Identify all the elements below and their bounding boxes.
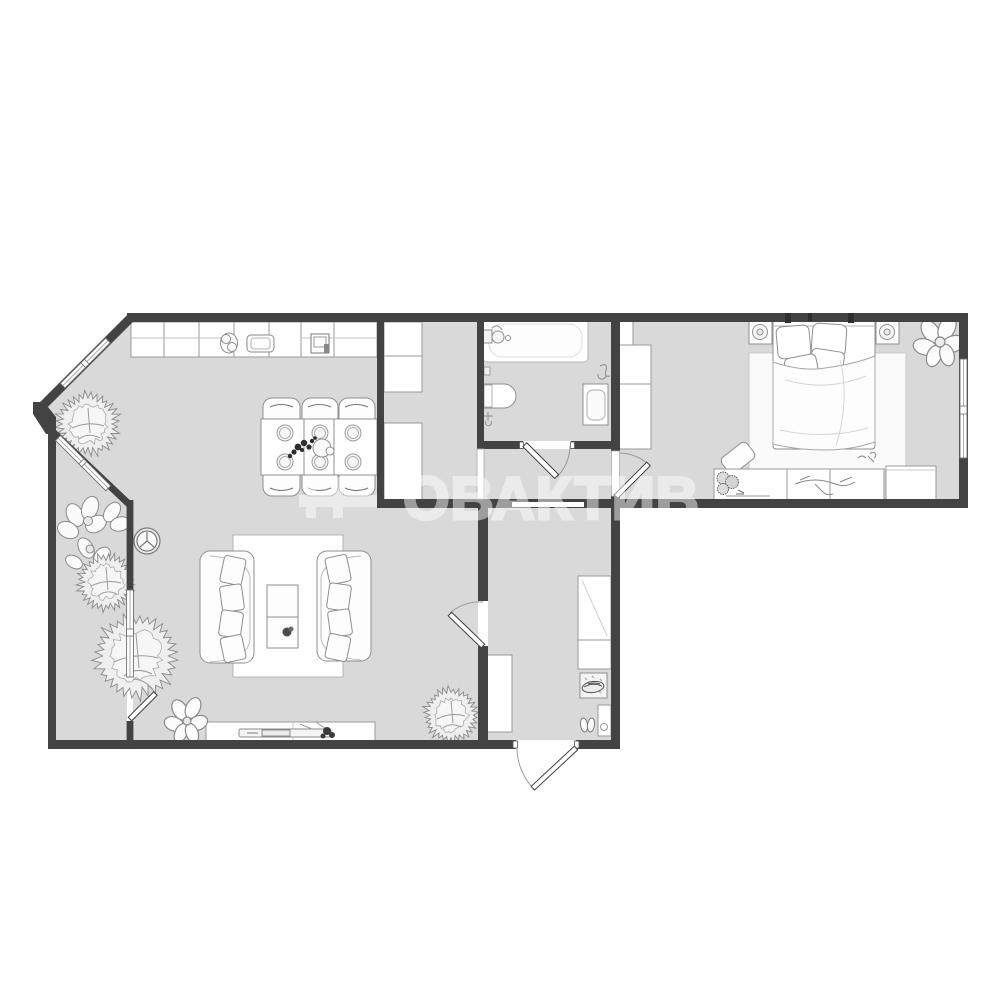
svg-text:ОВАКТИВ: ОВАКТИВ [403, 465, 699, 532]
